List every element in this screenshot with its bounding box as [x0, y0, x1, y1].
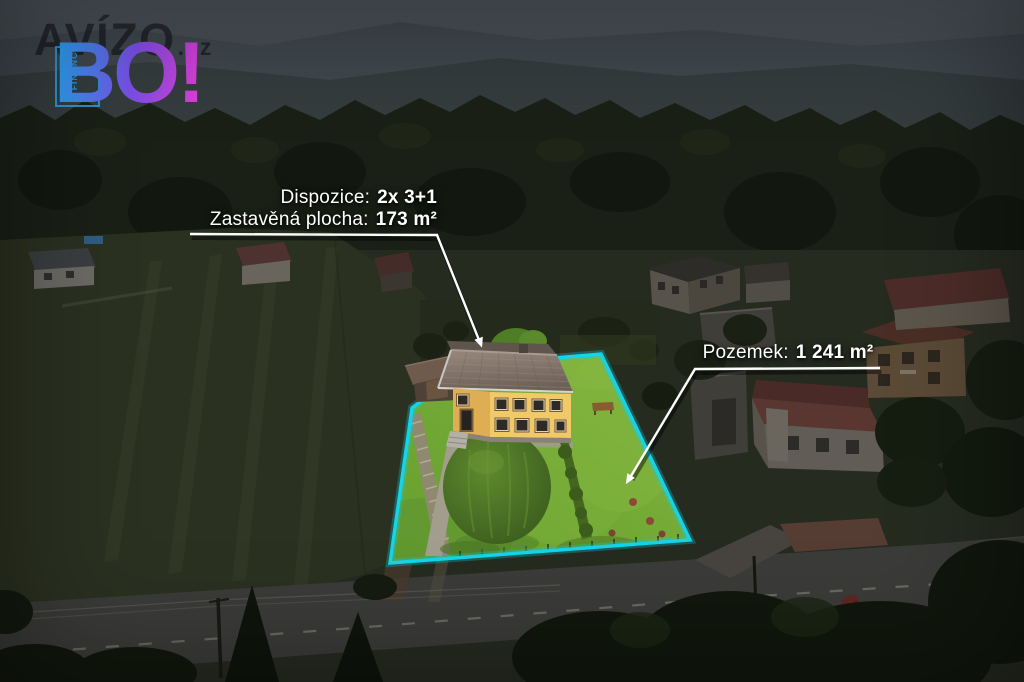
dispozice-label: Dispozice: — [281, 187, 371, 208]
zastavena-plocha-label: Zastavěná plocha: — [210, 209, 369, 230]
zastavena-plocha-value: 173 m² — [376, 209, 437, 230]
annotation-pozemek: Pozemek:1 241 m² — [694, 342, 882, 364]
pozemek-label: Pozemek: — [703, 342, 789, 363]
dispozice-row: Dispozice:2x 3+1 — [210, 187, 437, 209]
house-walls — [446, 388, 571, 449]
annotation-dispozice: Dispozice:2x 3+1 Zastavěná plocha:173 m² — [210, 187, 437, 230]
aerial-photo: Dispozice:2x 3+1 Zastavěná plocha:173 m²… — [0, 0, 1024, 682]
pozemek-value: 1 241 m² — [796, 342, 874, 363]
zastavena-plocha-row: Zastavěná plocha:173 m² — [210, 209, 437, 231]
bo-badge: BO! — [54, 30, 203, 116]
avizo-logo: AVÍZO.cz REALITY & FINANCE BO! — [30, 22, 265, 127]
dispozice-value: 2x 3+1 — [377, 187, 437, 208]
front-door — [462, 411, 472, 431]
entry-steps — [446, 431, 468, 449]
pool — [84, 236, 103, 244]
chimney — [519, 344, 528, 353]
